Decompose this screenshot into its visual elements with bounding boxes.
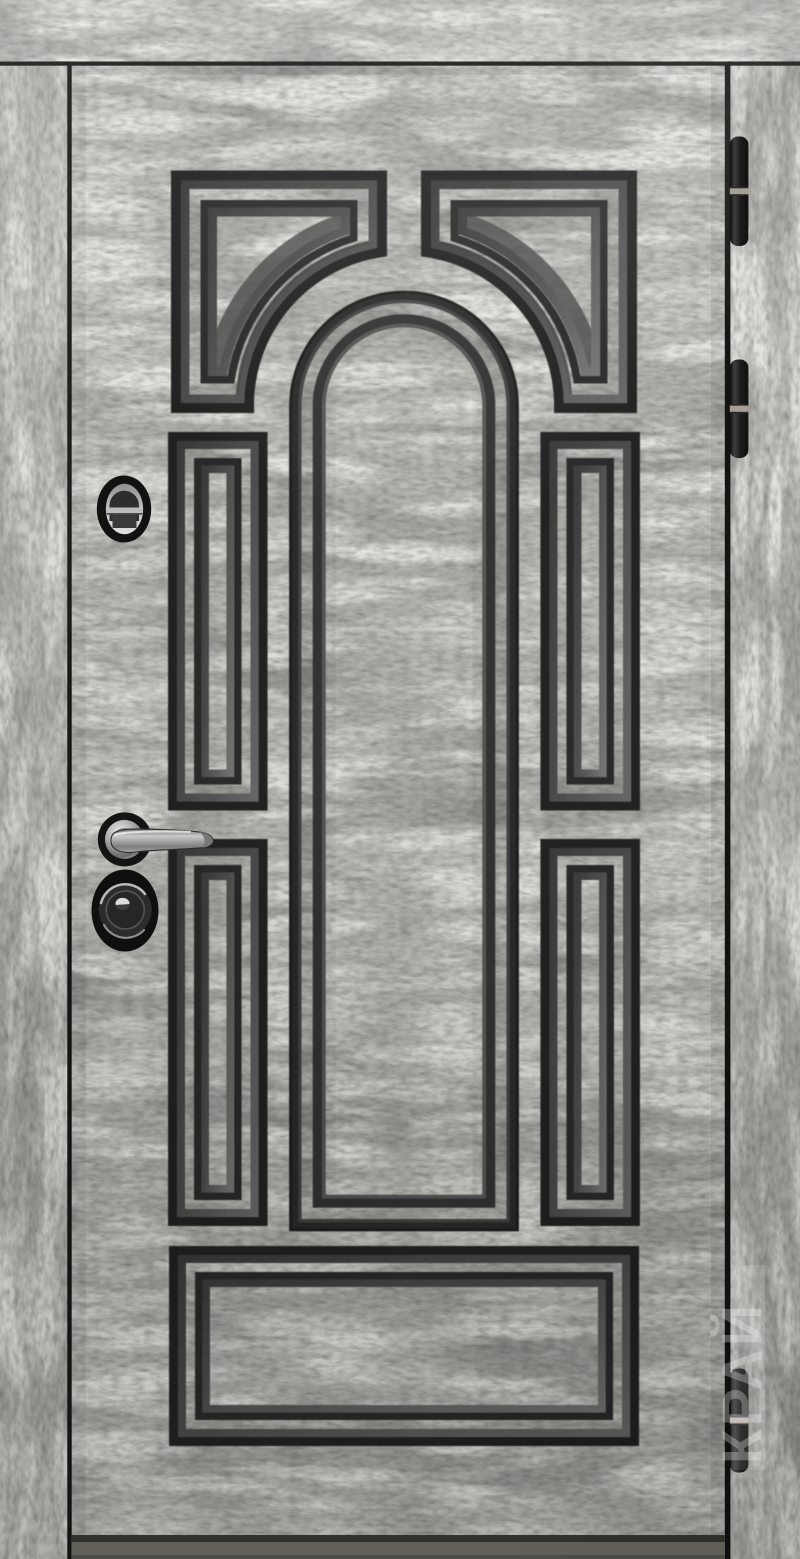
svg-text:КРАЙ: КРАЙ bbox=[710, 1302, 775, 1464]
